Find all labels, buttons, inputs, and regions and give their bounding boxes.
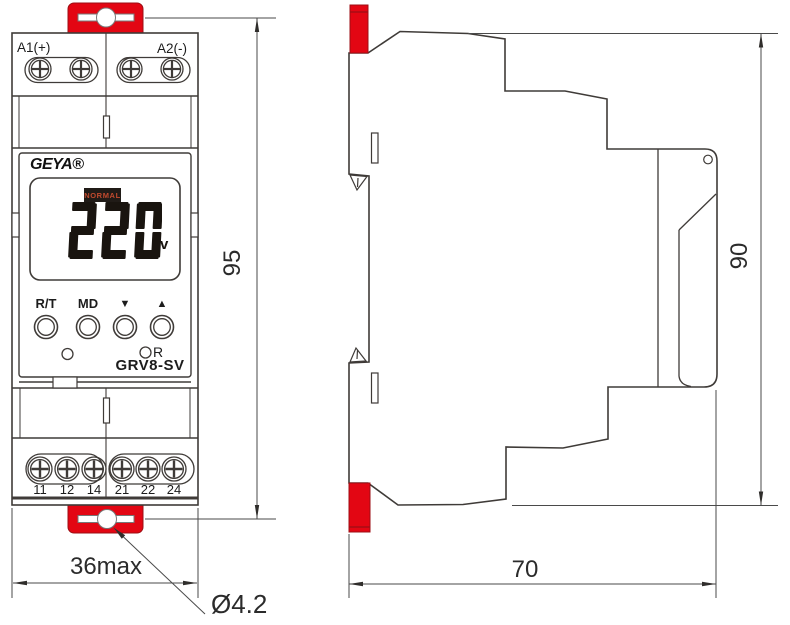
- side-tab-left: [12, 213, 19, 237]
- screw: [29, 58, 51, 80]
- clip-hole: [98, 510, 117, 529]
- terminal-number-14: 14: [81, 482, 107, 497]
- clip-hole: [97, 8, 116, 27]
- side-slot-bottom: [372, 373, 379, 403]
- latch-tab: [53, 377, 77, 388]
- front-body-outline: [12, 33, 198, 505]
- center-slot-bottom: [104, 398, 110, 423]
- lcd-seven-segment-value: [68, 202, 162, 260]
- terminal-label-a1: A1(+): [17, 40, 50, 55]
- dimension-hole-diameter: Ø4.2: [211, 589, 267, 620]
- terminal-number-11: 11: [27, 482, 53, 497]
- screw: [110, 457, 134, 481]
- dimension-side-height: 90: [726, 235, 754, 277]
- button-label-md: MD: [73, 296, 103, 311]
- button-label-up-icon: ▲: [148, 298, 176, 310]
- screw: [161, 58, 183, 80]
- screw: [120, 58, 142, 80]
- dimension-front-height: 95: [219, 242, 247, 284]
- side-slot-top: [372, 133, 379, 163]
- screw: [70, 58, 92, 80]
- screw: [82, 457, 106, 481]
- screw: [28, 457, 52, 481]
- dimension-front-width: 36max: [56, 553, 156, 581]
- terminal-number-12: 12: [54, 482, 80, 497]
- front-view: [12, 3, 198, 533]
- front-top-mounting-clip: [68, 3, 143, 33]
- button-label-down-icon: ▼: [111, 298, 139, 310]
- dimension-side-depth: 70: [495, 556, 555, 584]
- brand-logo: GEYA®: [30, 156, 83, 174]
- din-catch-bottom: [350, 348, 366, 362]
- screw: [162, 457, 186, 481]
- side-tab-right: [191, 213, 198, 237]
- side-view: [349, 5, 717, 532]
- side-body-outline: [349, 32, 717, 506]
- drawing-lineart: [0, 0, 790, 625]
- din-catch-top: [350, 175, 367, 190]
- front-bottom-mounting-clip: [68, 505, 143, 533]
- screw: [136, 457, 160, 481]
- center-slot-top: [104, 116, 110, 138]
- lcd-status-indicator: NORMAL: [84, 188, 121, 202]
- lcd-unit: v: [160, 236, 168, 253]
- button-label-rt: R/T: [31, 296, 61, 311]
- side-bottom-mounting-clip: [349, 483, 370, 532]
- terminal-number-21: 21: [109, 482, 135, 497]
- technical-drawing-canvas: A1(+) A2(-) GEYA® NORMAL v R/T MD ▼ ▲ R …: [0, 0, 790, 625]
- terminal-number-22: 22: [135, 482, 161, 497]
- terminal-label-a2: A2(-): [157, 41, 187, 56]
- screw: [55, 457, 79, 481]
- terminal-number-24: 24: [161, 482, 187, 497]
- side-top-mounting-clip: [350, 5, 368, 53]
- model-number: GRV8-SV: [110, 357, 190, 374]
